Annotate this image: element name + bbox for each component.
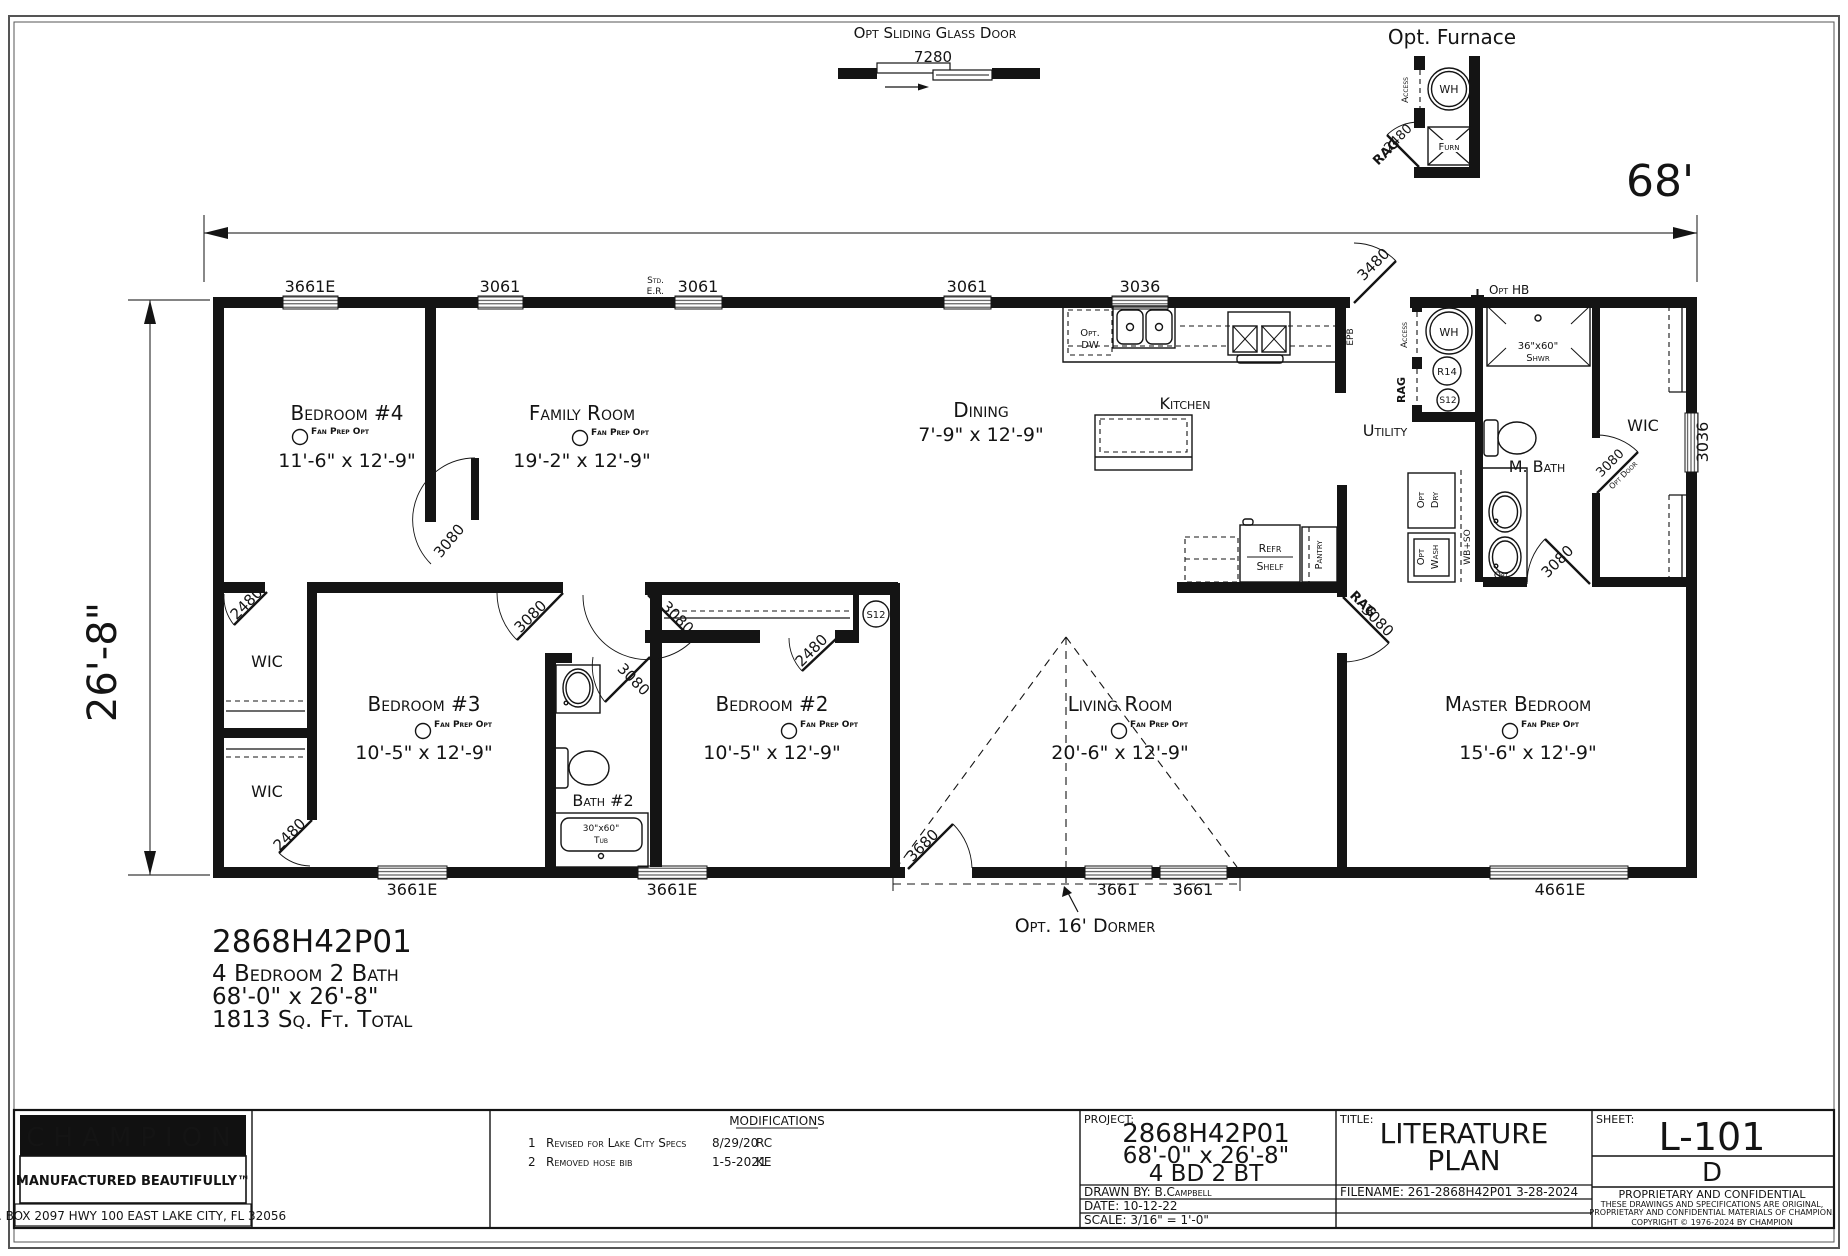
bath2-fixtures: 30"x60" Tub [552, 665, 648, 867]
room-name: Bedroom #4 [290, 401, 403, 425]
room-master: Master Bedroom Fan Prep Opt 15'-6" x 12'… [1445, 692, 1597, 764]
washer: Opt Wash [1408, 533, 1455, 582]
window-label: 3661 [1097, 880, 1138, 899]
dishwasher: Opt. DW [1068, 310, 1112, 355]
utility-fixtures: Access RAG WH R14 S12 Opt Dry Opt Wash W… [1395, 308, 1473, 582]
furnace-detail: Opt. Furnace Access WH Furn 2480 RAG [1370, 25, 1516, 178]
s12-label: S12 [1439, 396, 1456, 406]
room-dims: 10'-5" x 12'-9" [355, 742, 493, 764]
room-utility-label: Utility [1363, 421, 1408, 440]
room-bath2-label: Bath #2 [572, 791, 633, 810]
fan-prep-note: Fan Prep Opt [591, 428, 650, 438]
water-heater: WH [1426, 308, 1472, 354]
door-dim: 3080 [614, 660, 654, 700]
depth-dim-label: 26'-8" [80, 602, 126, 722]
bath2-vanity [556, 665, 600, 713]
sheet-title: PLAN [1427, 1144, 1500, 1177]
door-master-bath: 3080 [1527, 539, 1590, 584]
dryer: Opt Dry [1408, 473, 1455, 528]
interior-walls [213, 300, 1686, 867]
mod-desc: Revised for Lake City Specs [546, 1136, 686, 1150]
epb-label: EPB [1346, 328, 1356, 345]
door-bath2: 3080 [592, 657, 653, 702]
room-labels: Bedroom #4 Fan Prep Opt 11'-6" x 12'-9" … [251, 394, 1659, 810]
kitchen-fixtures: Opt. DW EPB [1063, 306, 1356, 470]
wh-label: WH [1439, 326, 1458, 339]
title-label: TITLE: [1339, 1113, 1373, 1126]
shower-label: Shwr [1526, 353, 1550, 364]
room-bedroom2: Bedroom #2 Fan Prep Opt 10'-5" x 12'-9" [703, 692, 859, 764]
room-dims: 15'-6" x 12'-9" [1459, 742, 1597, 764]
door-dim: 2480 [270, 815, 310, 855]
mod-by: KE [756, 1155, 771, 1169]
room-dims: 20'-6" x 12'-9" [1051, 742, 1189, 764]
mod-date: 8/29/20 [712, 1136, 758, 1150]
door-master-wic: 3080 Opt Door [1594, 435, 1640, 493]
r14-label: R14 [1437, 367, 1457, 378]
master-toilet [1484, 420, 1536, 456]
bath2-toilet [552, 748, 609, 788]
model-info: 2868H42P01 4 Bedroom 2 Bath 68'-0" x 26'… [212, 924, 412, 1033]
fan-prep-note: Fan Prep Opt [1130, 720, 1189, 730]
shower-size-label: 36"x60" [1518, 341, 1559, 352]
title-cell: TITLE: LITERATURE PLAN FILENAME: 261-286… [1336, 1113, 1592, 1213]
door-dim: 3080 [430, 520, 468, 561]
door-bedroom3: 3080 [497, 593, 563, 640]
copyright-text: COPYRIGHT © 1976-2024 BY CHAMPION [1631, 1218, 1793, 1227]
opt-wash-label: Wash [1430, 545, 1441, 569]
fan-prep-note: Fan Prep Opt [800, 720, 859, 730]
room-bedroom3: Bedroom #3 Fan Prep Opt 10'-5" x 12'-9" [355, 692, 493, 764]
sheet-cell: SHEET: L-101 D PROPRIETARY AND CONFIDENT… [1589, 1113, 1834, 1227]
mod-num: 2 [528, 1155, 536, 1169]
rag-label: RAG [1395, 377, 1408, 403]
door-dim: 3080 [1358, 601, 1398, 641]
room-name: Living Room [1068, 692, 1173, 716]
modification-row: 2 Removed hose bib 1-5-2021 KE [528, 1155, 771, 1169]
window-label: 4661E [1535, 880, 1586, 899]
door-rear-entry: 3480 [1354, 243, 1396, 303]
wb-so-label: WB+SO [1463, 529, 1473, 564]
opt-wash-label: Opt [1416, 548, 1427, 565]
door-front-entry: 3680 [903, 824, 972, 869]
er-note: E.R. [647, 287, 664, 297]
room-mbath-label: M. Bath [1509, 457, 1566, 476]
kitchen-island [1095, 415, 1192, 470]
filename: FILENAME: 261-2868H42P01 3-28-2024 [1340, 1185, 1578, 1199]
room-name: Bedroom #3 [367, 692, 480, 716]
door-bedroom4: 3080 [413, 458, 479, 564]
mod-desc: Removed hose bib [546, 1155, 633, 1169]
shelf-label: Shelf [1256, 560, 1284, 573]
room-bedroom4: Bedroom #4 Fan Prep Opt 11'-6" x 12'-9" [278, 401, 416, 472]
window-label: 3661 [1173, 880, 1214, 899]
door-dim: 3480 [1354, 245, 1394, 285]
door-closet2: 2480 [789, 631, 837, 671]
door-master-entry: RAG 3080 [1343, 588, 1397, 662]
std-note: Std. [647, 276, 664, 286]
bath2-tub: 30"x60" Tub [555, 813, 648, 867]
window-label: 3061 [678, 277, 719, 296]
champion-logo: CHAMPION MANUFACTURED BEAUTIFULLY™ P.O. … [0, 1115, 286, 1226]
window-label: 3061 [947, 277, 988, 296]
window-label: 3036 [1120, 277, 1161, 296]
room-dining: Dining 7'-9" x 12'-9" [918, 398, 1043, 446]
furnace-label: Opt. Furnace [1388, 25, 1516, 49]
mod-num: 1 [528, 1136, 536, 1150]
page-border [9, 16, 1839, 1248]
width-dim-label: 68' [1626, 156, 1694, 207]
opt-dw-label: Opt. [1080, 328, 1100, 339]
fan-prep-note: Fan Prep Opt [1521, 720, 1580, 730]
fan-prep-note: Fan Prep Opt [434, 720, 493, 730]
furnace-furn-label: Furn [1439, 142, 1460, 153]
window-label: 3661E [387, 880, 438, 899]
tub-label: Tub [593, 836, 608, 846]
door-dim: 3080 [1538, 542, 1578, 582]
door-wic-lower: 2480 [270, 815, 312, 866]
master-wic-shelves [1669, 306, 1686, 580]
model-area: 1813 Sq. Ft. Total [212, 1007, 412, 1033]
modifications-table: MODIFICATIONS 1 Revised for Lake City Sp… [528, 1114, 825, 1169]
room-wic-label: WIC [251, 782, 283, 801]
s12-closet-label: S12 [866, 610, 885, 621]
sliding-door-label: Opt Sliding Glass Door [854, 24, 1017, 42]
sink-opt-label: Opt [1494, 571, 1509, 581]
room-name: Dining [953, 398, 1008, 422]
window-label: 3661E [647, 880, 698, 899]
window-label: 3661E [285, 277, 336, 296]
opt-hb-label: Opt HB [1489, 283, 1529, 297]
opt-dw-label: DW [1081, 340, 1099, 351]
room-wic-label: WIC [1627, 416, 1659, 435]
room-kitchen-label: Kitchen [1160, 394, 1211, 413]
brand-address: P.O. BOX 2097 HWY 100 EAST LAKE CITY, FL… [0, 1209, 286, 1223]
room-name: Bedroom #2 [715, 692, 828, 716]
model-number: 2868H42P01 [212, 924, 412, 960]
room-wic-label: WIC [251, 652, 283, 671]
master-vanity: Opt [1483, 468, 1527, 582]
brand-tagline: MANUFACTURED BEAUTIFULLY™ [16, 1174, 250, 1189]
fan-prep-note: Fan Prep Opt [311, 427, 370, 437]
opt-dry-label: Opt [1416, 491, 1427, 508]
room-dims: 10'-5" x 12'-9" [703, 742, 841, 764]
refrigerator: Refr Shelf [1240, 519, 1300, 582]
room-dims: 19'-2" x 12'-9" [513, 450, 651, 472]
project-config: 4 BD 2 BT [1149, 1161, 1264, 1187]
pantry-label: Pantry [1314, 540, 1325, 570]
range [1228, 312, 1290, 363]
room-dims: 11'-6" x 12'-9" [278, 450, 416, 472]
furnace-access-label: Access [1401, 77, 1411, 103]
pantry: Pantry [1302, 527, 1337, 582]
refr-label: Refr [1259, 542, 1282, 555]
confidential-text: PROPRIETARY AND CONFIDENTIAL MATERIALS O… [1589, 1208, 1834, 1217]
storage-fixtures: Refr Shelf Pantry [1185, 519, 1337, 582]
title-block: CHAMPION MANUFACTURED BEAUTIFULLY™ P.O. … [0, 1110, 1835, 1228]
depth-dimension: 26'-8" [80, 300, 210, 875]
sliding-door-detail: Opt Sliding Glass Door 7280 [838, 24, 1040, 91]
room-dims: 7'-9" x 12'-9" [918, 424, 1043, 446]
sheet-number: L-101 [1659, 1115, 1766, 1159]
sheet-revision: D [1702, 1158, 1722, 1188]
brand-name: CHAMPION [26, 1123, 239, 1153]
floor-plan-sheet: Opt Sliding Glass Door 7280 Opt. Furnace… [0, 0, 1848, 1256]
mod-by: RC [756, 1136, 772, 1150]
door-dim: 3080 [511, 597, 551, 637]
room-name: Family Room [529, 401, 635, 425]
modifications-title: MODIFICATIONS [729, 1114, 825, 1128]
project-cell: PROJECT: 2868H42P01 68'-0" x 26'-8" 4 BD… [1080, 1113, 1336, 1227]
room-living: Living Room Fan Prep Opt 20'-6" x 12'-9" [1051, 692, 1189, 764]
furnace-wh-label: WH [1439, 83, 1458, 96]
window-label: 3061 [480, 277, 521, 296]
date: DATE: 10-12-22 [1084, 1199, 1178, 1213]
access-label: Access [1400, 322, 1410, 348]
modification-row: 1 Revised for Lake City Specs 8/29/20 RC [528, 1136, 772, 1150]
door-bedroom2: 3080 [583, 595, 697, 660]
tub-size-label: 30"x60" [583, 824, 620, 834]
shower: 36"x60" Shwr [1487, 306, 1590, 366]
sheet-label: SHEET: [1596, 1113, 1634, 1126]
drawn-by: DRAWN BY: B.Campbell [1084, 1185, 1212, 1199]
master-bath-fixtures: 36"x60" Shwr Opt [1483, 306, 1590, 582]
scale: SCALE: 3/16" = 1'-0" [1084, 1213, 1209, 1227]
kitchen-sink [1113, 306, 1175, 348]
opt-dry-label: Dry [1430, 491, 1441, 508]
room-name: Master Bedroom [1445, 692, 1591, 716]
window-label: 3036 [1693, 422, 1712, 463]
dormer-label: Opt. 16' Dormer [1015, 915, 1156, 937]
room-family: Family Room Fan Prep Opt 19'-2" x 12'-9" [513, 401, 651, 472]
